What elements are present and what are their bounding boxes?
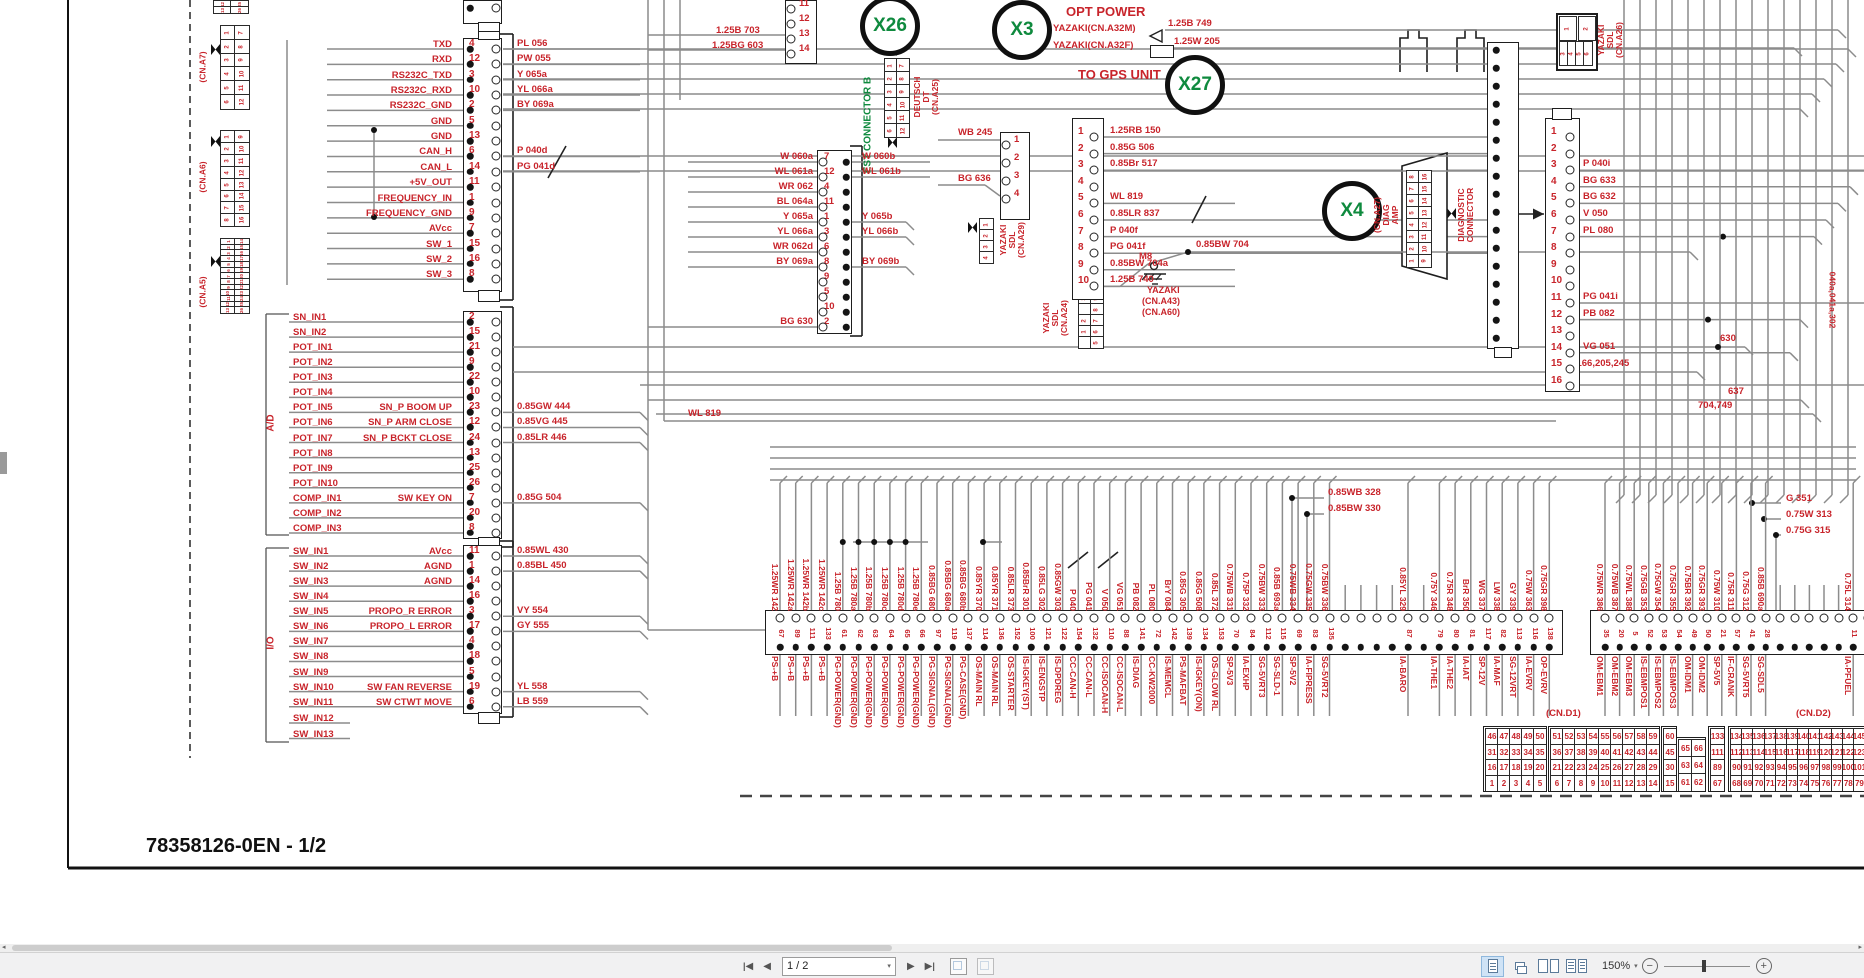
signal-name: SW_IN3 (293, 577, 328, 587)
wire-label: 0.85LG 302 (1036, 537, 1046, 611)
signal-name: AVcc (429, 224, 452, 234)
pin-circle (492, 152, 501, 161)
signal-label: IS-EBMPOS2 (1652, 656, 1662, 730)
pin-number: 1 (1551, 127, 1557, 137)
page-dropdown-icon[interactable]: ▾ (887, 962, 891, 970)
wire-label: BG 636 (958, 174, 991, 184)
pin-number: 7 (1078, 227, 1084, 237)
pin-circle (917, 614, 926, 623)
junction-dot (467, 184, 474, 191)
junction-dot (840, 644, 847, 651)
wire-label: VG 051 (1114, 537, 1124, 611)
pin-circle (492, 657, 501, 666)
wire-label: Y 065b (862, 212, 892, 222)
signal-label: SG-5VRT2 (1319, 656, 1329, 730)
wire-label: PG 041d (517, 162, 555, 172)
pin-circle (1404, 614, 1413, 623)
pin-circle (492, 702, 501, 711)
wire-label: PL 056 (517, 39, 547, 49)
pin-circle (1566, 133, 1575, 142)
junction-dot (467, 568, 474, 575)
zoom-slider-thumb[interactable] (1702, 960, 1706, 972)
wire-label: 0.85BW 330 (1328, 504, 1381, 514)
wire-label: 1.25B 749 (1168, 19, 1212, 29)
signal-name: POT_IN9 (293, 464, 333, 474)
junction-dot (1530, 644, 1537, 651)
signal-name: SW_IN13 (293, 730, 334, 740)
pin-number: 11 (799, 0, 809, 9)
wire-label: 704,749 (1698, 401, 1732, 411)
pin-circle (1566, 199, 1575, 208)
pin-number: 3 (1551, 160, 1557, 170)
junction-dot (843, 174, 850, 181)
junction-dot (918, 644, 925, 651)
pin-circle (885, 614, 894, 623)
junction-dot (467, 379, 474, 386)
wire-label: PG 041f (1110, 242, 1145, 252)
pin-circle (1482, 614, 1491, 623)
scroll-left-icon[interactable]: ◂ (2, 943, 6, 951)
junction-dot (467, 364, 474, 371)
junction-dot (1616, 644, 1623, 651)
pin-circle (1545, 614, 1554, 623)
signal-name: POT_IN5 (293, 403, 333, 413)
junction-dot (1777, 644, 1784, 651)
wire-label: YL 066a (517, 85, 553, 95)
zoom-in-button[interactable]: + (1756, 958, 1772, 974)
signal-label: SG-5VRT3 (1256, 656, 1266, 730)
pin-circle (1199, 614, 1208, 623)
junction-dot (1436, 644, 1443, 651)
wire-label: 0.75R 311 (1725, 537, 1735, 611)
junction-dot (1295, 644, 1302, 651)
pin-grid-cell: 16 (234, 213, 250, 227)
pin-circle (492, 137, 501, 146)
signal-label: IF-CRANK (1725, 656, 1735, 730)
signal-name: FREQUENCY_IN (378, 194, 452, 204)
pin-number: 116 (1529, 623, 1539, 644)
pin-number: 141 (1136, 623, 1146, 644)
pin-circle (492, 378, 501, 387)
wire-label: 1.25B 780d (895, 537, 905, 611)
junction-dot (1493, 47, 1500, 54)
wire-label: YL 066a (777, 227, 813, 237)
zoom-dropdown-icon[interactable]: ▾ (1634, 962, 1638, 970)
junction-dot (467, 583, 474, 590)
pin-circle (787, 5, 796, 14)
connector-body (478, 290, 500, 302)
pin-grid-cell: 26 (234, 306, 250, 314)
signal-name: GND (431, 132, 452, 142)
wire-label: 0.75R 348 (1444, 537, 1454, 611)
signal-label: IA-THE2 (1444, 656, 1454, 730)
pin-circle (1566, 232, 1575, 241)
pin-number: 79 (1434, 623, 1444, 644)
pin-circle (1002, 195, 1011, 204)
wire-label: 1.25RB 150 (1110, 126, 1161, 136)
scrollbar-thumb[interactable] (12, 945, 892, 951)
junction-dot (467, 613, 474, 620)
junction-dot (467, 92, 474, 99)
pin-circle (492, 582, 501, 591)
pin-circle (1356, 614, 1365, 623)
page-number-input[interactable]: 1 / 2 ▾ (782, 957, 896, 976)
junction-dot (1493, 281, 1500, 288)
pin-circle (1278, 614, 1287, 623)
pin-circle (492, 363, 501, 372)
wire-label: 0.75GW 335 (1303, 537, 1313, 611)
pin-number: 15 (1551, 359, 1562, 369)
pin-number: 70 (1230, 623, 1240, 644)
signal-label: PG-CASE(GND) (957, 656, 967, 730)
signal-label: CC-CAN-L (1083, 656, 1093, 730)
signal-label: IA-MAF (1491, 656, 1501, 730)
signal-name: COMP_IN3 (293, 524, 342, 534)
pin-circle (1566, 182, 1575, 191)
junction-dot (467, 658, 474, 665)
signal-label: PS-+B (785, 656, 795, 730)
pin-circle (980, 614, 989, 623)
pin-number: 10 (1078, 276, 1089, 286)
pin-number: 13 (1551, 326, 1562, 336)
pin-circle (870, 614, 879, 623)
pin-number: 52 (1644, 623, 1654, 644)
pin-circle (787, 50, 796, 59)
horizontal-scrollbar[interactable]: ◂ ▸ (0, 944, 1864, 952)
signal-name: +5V_OUT (409, 178, 452, 188)
junction-dot (467, 454, 474, 461)
next-page-button[interactable]: ▶ (907, 961, 915, 972)
pin-circle (492, 229, 501, 238)
wire-label: 0.85BW 704a (1110, 259, 1168, 269)
snapshot-icon[interactable] (950, 958, 967, 975)
pin-number: 97 (932, 623, 942, 644)
wire-label: P 040d (517, 146, 547, 156)
wire-label: P 040 (1067, 537, 1077, 611)
wire-label: PG 041i (1583, 292, 1618, 302)
signal-name: CAN_L (420, 163, 452, 173)
junction-dot (467, 169, 474, 176)
junction-dot (843, 189, 850, 196)
junction-dot (843, 159, 850, 166)
pin-circle (1074, 614, 1083, 623)
signal-label: OM-IDM1 (1682, 656, 1692, 730)
junction-dot (1850, 644, 1857, 651)
pin-circle (1090, 614, 1099, 623)
pin-circle (1090, 149, 1099, 158)
pin-number: 114 (979, 623, 989, 644)
junction-dot (467, 500, 474, 507)
pin-circle (1674, 614, 1683, 623)
pin-grid-outline (1728, 726, 1864, 792)
junction-dot (467, 138, 474, 145)
document-page: 78358126-0EN - 1/2 X26X3X27X4OPT POWERYA… (0, 0, 1864, 944)
wire-label: 0.85BG 680a (942, 537, 952, 611)
wire-label: Y 065a (517, 70, 547, 80)
wire-label: 1.25WR 142a (785, 537, 795, 611)
signal-label: IA-FIPRESS (1303, 656, 1313, 730)
pin-number: 35 (1600, 623, 1610, 644)
wire-label: VG 051 (1583, 342, 1615, 352)
wire-label: G 351 (1786, 494, 1812, 504)
wire-label: P 040i (1583, 159, 1610, 169)
pin-circle (492, 528, 501, 537)
wire-label: YAZAKI(CN.A32M) (1053, 24, 1136, 34)
pin-circle (1566, 365, 1575, 374)
junction-dot (1493, 101, 1500, 108)
first-page-button[interactable]: |◀ (743, 961, 753, 972)
pin-circle (1090, 182, 1099, 191)
signal-label: PS-+B (769, 656, 779, 730)
pin-circle (1566, 265, 1575, 274)
zoom-slider[interactable] (1664, 959, 1750, 973)
pin-circle (1090, 232, 1099, 241)
signal-name: SN_IN2 (293, 328, 326, 338)
signal-label: PS-+B (800, 656, 810, 730)
pin-circle (1849, 614, 1858, 623)
pin-number: 5 (1551, 193, 1557, 203)
pin-circle (1090, 199, 1099, 208)
single-page-view-button[interactable] (1481, 956, 1504, 977)
pin-circle (1002, 141, 1011, 150)
pin-circle (1601, 614, 1610, 623)
pin-number: 154 (1073, 623, 1083, 644)
junction-dot (855, 644, 862, 651)
signal-name: POT_IN1 (293, 343, 333, 353)
signal-name: POT_IN7 (293, 434, 333, 444)
wire-label: (CN.D2) (1796, 709, 1831, 719)
wire-label: 0.75W 363 (1523, 537, 1533, 611)
junction-dot (1263, 644, 1270, 651)
left-edge-mark (0, 452, 7, 474)
pin-circle (492, 612, 501, 621)
pin-circle (1776, 614, 1785, 623)
wire-label: 0.75W 313 (1786, 510, 1832, 520)
junction-dot (467, 485, 474, 492)
pin-circle (901, 614, 910, 623)
pin-circle (1834, 614, 1843, 623)
wire-label: 0.85LR 446 (517, 433, 567, 443)
signal-label: IS-ENGSTP (1036, 656, 1046, 730)
junction-dot (1493, 65, 1500, 72)
zoom-out-button[interactable]: − (1642, 958, 1658, 974)
junction-dot (1138, 644, 1145, 651)
wire-label: BG 630 (780, 317, 813, 327)
signal-name: FREQUENCY_GND (366, 209, 452, 219)
signal-name: SW_2 (426, 255, 452, 265)
wire-label: 0.75GR 393 (1696, 537, 1706, 611)
junction-dot (467, 673, 474, 680)
junction-dot (1493, 245, 1500, 252)
pin-circle (776, 614, 785, 623)
connector-body (1072, 118, 1104, 300)
wire-label: 1.25WR 142c (816, 537, 826, 611)
vertical-label: DIAGNOSTICCONNECTOR (1457, 188, 1475, 243)
pin-circle (1168, 614, 1177, 623)
wire-label: 0.85GW 303 (1052, 537, 1062, 611)
pin-number: 3 (1078, 160, 1084, 170)
pin-grid-outline (1548, 726, 1660, 792)
junction-dot (467, 123, 474, 130)
wire-label: (CN.A60) (1142, 308, 1180, 317)
scroll-right-icon[interactable]: ▸ (1858, 943, 1862, 951)
wire-label: 1.25W 205 (1174, 37, 1220, 47)
signal-name: POT_IN10 (293, 479, 338, 489)
vertical-label: I/O (267, 636, 278, 649)
signal-label: SP-5V5 (1711, 656, 1721, 730)
facing-continuous-view-button[interactable] (1565, 956, 1588, 977)
pin-number: 6 (1078, 210, 1084, 220)
junction-dot (467, 703, 474, 710)
junction-dot (1602, 644, 1609, 651)
wire-label: WB 245 (958, 128, 992, 138)
wire-label: PG 041 (1083, 537, 1093, 611)
junction-dot (1483, 644, 1490, 651)
wire-label: 0.75GR 398 (1538, 537, 1548, 611)
facing-view-button[interactable] (1537, 956, 1560, 977)
junction-dot (1468, 644, 1475, 651)
pin-circle (787, 35, 796, 44)
signal-name: CAN_H (419, 147, 452, 157)
junction-dot (1122, 644, 1129, 651)
pin-number: 50 (1702, 623, 1712, 644)
pin-circle (1215, 614, 1224, 623)
pin-number: 65 (901, 623, 911, 644)
signal-label: PG-POWER(GND) (895, 656, 905, 730)
signal-label: SG-12VRT (1507, 656, 1517, 730)
pin-circle (492, 213, 501, 222)
wire-label: TO GPS UNIT (1078, 68, 1161, 81)
signal-function: AGND (424, 562, 452, 572)
pdf-viewer-window: 78358126-0EN - 1/2 X26X3X27X4OPT POWERYA… (0, 0, 1864, 978)
previous-page-button[interactable]: ◀ (763, 961, 771, 972)
pin-circle (819, 323, 828, 332)
junction-dot (1546, 644, 1553, 651)
junction-dot (467, 5, 474, 12)
pin-number: 138 (1544, 623, 1554, 644)
signal-label: PG-SIGNAL(GND) (926, 656, 936, 730)
pin-circle (1466, 614, 1475, 623)
pin-circle (1820, 614, 1829, 623)
signal-label: OM-EBM1 (1594, 656, 1604, 730)
junction-dot (467, 628, 474, 635)
last-page-button[interactable]: ▶| (925, 961, 935, 972)
pin-number: 1 (1078, 127, 1084, 137)
pin-circle (1184, 614, 1193, 623)
pin-circle (1732, 614, 1741, 623)
wire-label: WL 819 (1110, 192, 1143, 202)
junction-dot (467, 199, 474, 206)
junction-dot (1201, 644, 1208, 651)
pin-number: 53 (1658, 623, 1668, 644)
pin-number: 28 (1761, 623, 1771, 644)
signal-name: SW_IN9 (293, 668, 328, 678)
wire-label: 0.85BW 704 (1196, 240, 1249, 250)
wire-label: W 060a (780, 152, 813, 162)
junction-dot (1689, 644, 1696, 651)
wire-label: 0.85WB 328 (1328, 488, 1381, 498)
junction-dot (467, 515, 474, 522)
pin-number: 81 (1466, 623, 1476, 644)
pin-number: 66 (916, 623, 926, 644)
pin-circle (838, 614, 847, 623)
signal-name: POT_IN2 (293, 358, 333, 368)
pin-circle (492, 45, 501, 54)
pin-circle (1513, 614, 1522, 623)
pin-number: 11 (1551, 293, 1562, 303)
signal-label: PS-+B (816, 656, 826, 730)
pin-number: 49 (1688, 623, 1698, 644)
pin-circle (1011, 614, 1020, 623)
pin-grid-cell: 12 (896, 123, 910, 138)
pin-number: 4 (1078, 177, 1084, 187)
wire-label: YL 066b (862, 227, 898, 237)
wire-label: 0.85L 372 (1209, 537, 1219, 611)
junction-dot (808, 644, 815, 651)
pin-number: 16 (1551, 376, 1562, 386)
signal-label: CC-ISOCAN-H (1099, 656, 1109, 730)
junction-dot (467, 469, 474, 476)
continuous-view-button[interactable] (1509, 956, 1532, 977)
pin-number: 20 (1615, 623, 1625, 644)
pin-circle (492, 121, 501, 130)
wire-label: YL 558 (517, 682, 547, 692)
junction-dot (843, 204, 850, 211)
wire-label: 1.25B 703 (716, 26, 760, 36)
junction-dot (467, 319, 474, 326)
junction-dot (1493, 317, 1500, 324)
signal-label: SP-5V2 (1287, 656, 1297, 730)
junction-dot (467, 598, 474, 605)
signal-label: PG-POWER(GND) (848, 656, 858, 730)
wire-label: BL 064a (777, 197, 813, 207)
wire-label: 0.75P 332 (1240, 537, 1250, 611)
wire-label: LW 338 (1491, 537, 1501, 611)
callout-circle: X3 (992, 0, 1052, 60)
junction-dot (1493, 209, 1500, 216)
wire-label: 0.75BR 392 (1682, 537, 1692, 611)
junction-dot (467, 394, 474, 401)
wire-label: LB 559 (517, 697, 548, 707)
junction-dot (467, 530, 474, 537)
wire-label: 0.75Y 346 (1428, 537, 1438, 611)
pin-grid-outline (1661, 726, 1677, 792)
pin-circle (492, 597, 501, 606)
pin-circle (492, 275, 501, 284)
wire-label: 0.75GR 355 (1667, 537, 1677, 611)
pin-circle (1498, 614, 1507, 623)
wire-label: 0.75L 314 (1842, 537, 1852, 611)
pin-circle (492, 438, 501, 447)
pin-number: 142 (1168, 623, 1178, 644)
wire-label: 637 (1728, 387, 1744, 397)
pin-number: 14 (799, 44, 810, 54)
wire-label: WL 061b (862, 167, 901, 177)
wire-label: 0.85WL 430 (517, 546, 569, 556)
junction-dot (1660, 644, 1667, 651)
junction-dot (1028, 644, 1035, 651)
pin-circle (1090, 216, 1099, 225)
pin-circle (1121, 614, 1130, 623)
signal-name: SW_IN12 (293, 714, 334, 724)
pin-circle (492, 333, 501, 342)
pin-number: 67 (775, 623, 785, 644)
clipboard-icon[interactable] (977, 958, 994, 975)
pin-circle (1703, 614, 1712, 623)
pin-grid-outline (1483, 726, 1547, 792)
junction-dot (1216, 644, 1223, 651)
wire-label: 0.75G 312 (1740, 537, 1750, 611)
